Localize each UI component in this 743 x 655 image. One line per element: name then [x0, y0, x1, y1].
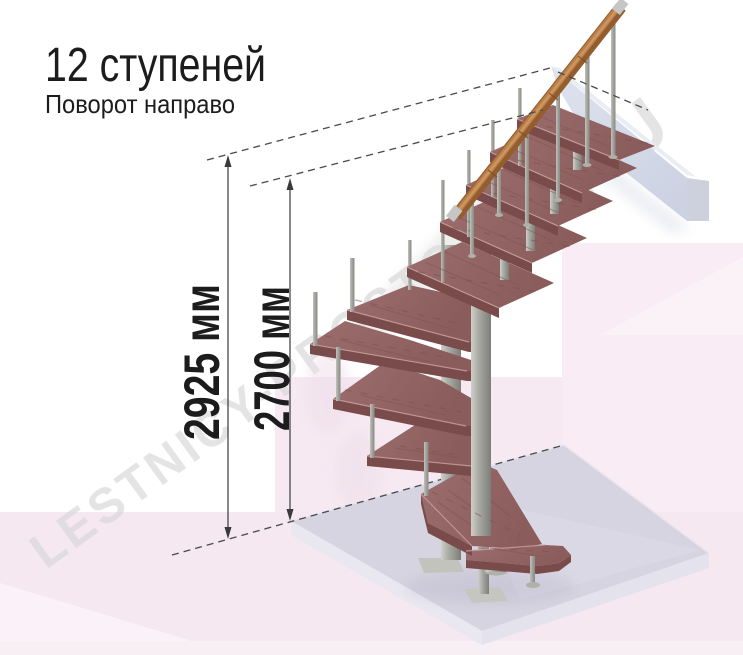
svg-text:Поворот направо: Поворот направо — [45, 89, 235, 119]
svg-text:2700 мм: 2700 мм — [244, 286, 300, 431]
svg-text:12 ступеней: 12 ступеней — [45, 39, 266, 92]
svg-text:2925 мм: 2925 мм — [174, 284, 230, 440]
